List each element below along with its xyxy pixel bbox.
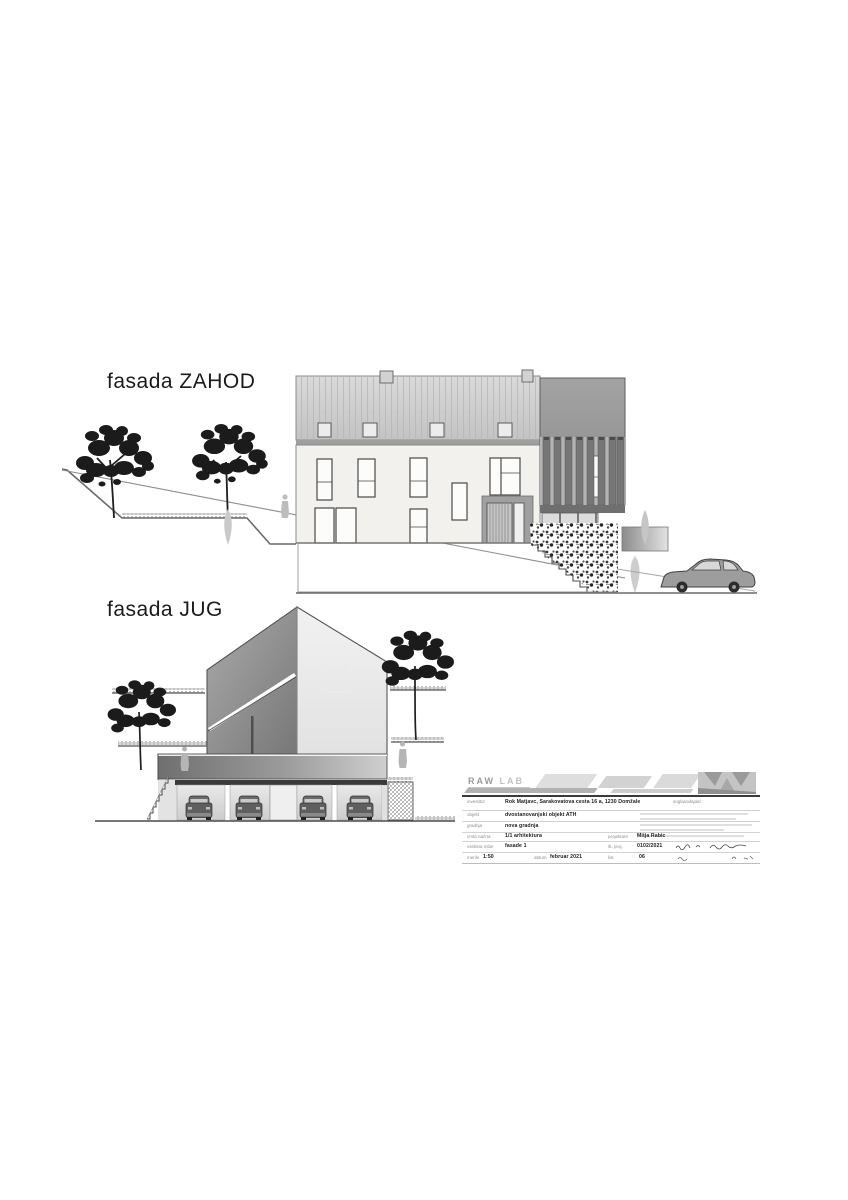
field-value: februar 2021 [550,855,582,860]
deco-band [464,788,598,793]
field-value: fasade 1 [505,844,527,849]
eaves-band [296,440,540,445]
chimney-icon [522,370,533,382]
chimney-icon [380,371,393,383]
signatories-label: soglasodajalci [673,800,701,805]
car-icon [347,796,373,820]
logo-word-2: LAB [500,776,525,786]
person-icon [281,494,289,518]
slope-vegetation [530,523,618,592]
fine-print-line [640,813,748,815]
tower-band [540,505,625,513]
signature-scribble [674,853,756,862]
person-icon [399,742,408,769]
cypress-icon [631,556,640,593]
main-facade [296,445,540,543]
logo-word-1: RAW [468,776,495,786]
west-facade-drawing [55,360,765,605]
field-label: investitor [467,800,485,805]
gable-right-face [297,607,387,755]
field-label: merilo [467,856,479,861]
field-value: nova gradnja [505,824,539,829]
header-rule [462,795,760,797]
field-label: projektant [608,835,628,840]
field-value: 1:50 [483,855,494,860]
deco-band [598,776,652,788]
field-label: št. proj. [608,845,623,850]
field-value: dvostanovanjski objekt ATH [505,813,577,818]
field-value: Rok Matjavc, Sarakovatova cesta 16 a, 12… [505,800,640,805]
drawing-sheet: fasada ZAHOD [0,0,848,1200]
field-label: vsebina risbe [467,845,494,850]
hatched-wall [388,777,413,820]
field-label: vrsta načrta [467,835,491,840]
field-label: gradnja [467,824,482,829]
field-value: 1/1 arhitektura [505,834,542,839]
garage-front [158,780,387,820]
car-icon [300,796,326,820]
field-label: list [608,856,614,861]
south-facade-drawing [85,600,475,835]
stair-window [452,483,467,520]
sidelight [514,503,524,543]
titleblock-header: RAW LAB [462,772,760,795]
fine-print-line [640,824,752,826]
field-value: 06 [639,855,645,860]
entrance-door [482,496,533,543]
tree-icon [192,424,268,518]
car-icon [661,559,755,593]
person-icon [181,747,190,772]
louver-tower [540,378,625,527]
bottom-rule [462,863,760,864]
fine-print-line [640,829,724,831]
car-icon [186,796,212,820]
field-value: 0102/2021 [637,844,662,849]
garage-slab [158,754,387,779]
title-block: RAW LAB investitor Rok Matjavc, Sarakova… [462,772,760,865]
fine-print-line [640,818,736,820]
flue-pipe [251,716,254,756]
car-icon [236,796,262,820]
row-divider [462,821,760,822]
right-terraces [390,685,446,742]
logo-text: RAW LAB [468,776,524,786]
gable-building [207,607,387,756]
field-label: objekt [467,813,479,818]
signature-scribble [674,842,752,851]
field-label: datum [534,856,547,861]
deco-band [611,789,694,793]
deco-band [653,774,701,788]
field-value: Mitja Rabic [637,834,665,839]
center-pillar [270,785,297,820]
row-divider [462,810,760,811]
company-logo-icon [698,772,756,794]
deco-band [535,774,598,789]
tree-icon [76,425,154,518]
roof [296,370,540,445]
